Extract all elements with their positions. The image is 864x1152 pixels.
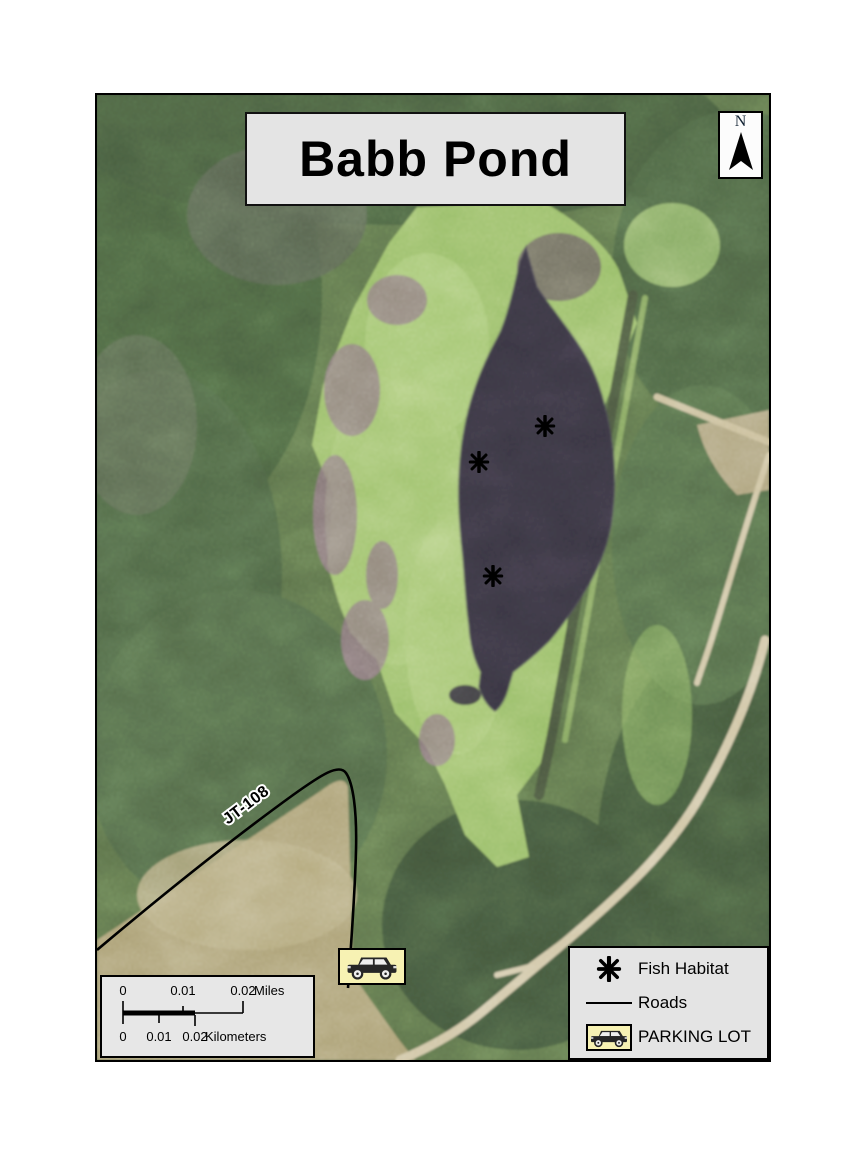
parking-car-icon xyxy=(580,1024,638,1051)
north-label: N xyxy=(735,114,747,130)
scale-km-labels: 0 0.01 0.02 Kilometers xyxy=(119,1029,267,1044)
legend: Fish Habitat Roads PARKING LOT xyxy=(568,946,769,1060)
road-line-icon xyxy=(586,1002,632,1004)
scale-bar-thick-segment xyxy=(123,1011,195,1016)
north-arrow-icon xyxy=(727,130,755,172)
scale-miles-labels: 0 0.01 0.02 Miles xyxy=(119,983,284,998)
asterisk-marker-icon xyxy=(580,956,638,982)
scale-bar: 0 0.01 0.02 Miles 0 0.01 0.02 xyxy=(100,975,315,1058)
map-canvas[interactable]: JT-108 xyxy=(97,95,769,1060)
legend-label: PARKING LOT xyxy=(638,1027,751,1047)
svg-text:0.02: 0.02 xyxy=(182,1029,207,1044)
map-title-box: Babb Pond xyxy=(245,112,626,206)
fish-habitat-marker xyxy=(536,416,553,435)
map-frame: JT-108 Babb Pond N 0 0.01 xyxy=(95,93,771,1062)
svg-text:0.01: 0.01 xyxy=(170,983,195,998)
map-title: Babb Pond xyxy=(299,130,572,188)
svg-text:0.02: 0.02 xyxy=(230,983,255,998)
legend-label: Roads xyxy=(638,993,687,1013)
fish-habitat-marker xyxy=(470,452,487,471)
svg-text:0: 0 xyxy=(119,1029,126,1044)
svg-text:0: 0 xyxy=(119,983,126,998)
north-arrow: N xyxy=(718,111,763,179)
legend-item-parking-lot: PARKING LOT xyxy=(580,1023,767,1051)
legend-item-fish-habitat: Fish Habitat xyxy=(580,955,767,983)
aerial-imagery xyxy=(97,95,769,1060)
scale-km-unit: Kilometers xyxy=(205,1029,267,1044)
parking-lot-icon xyxy=(339,949,405,984)
scale-miles-unit: Miles xyxy=(254,983,285,998)
map-document-page: JT-108 Babb Pond N 0 0.01 xyxy=(0,0,864,1152)
svg-text:0.01: 0.01 xyxy=(146,1029,171,1044)
legend-item-roads: Roads xyxy=(580,989,767,1017)
fish-habitat-marker xyxy=(484,566,501,585)
legend-label: Fish Habitat xyxy=(638,959,729,979)
